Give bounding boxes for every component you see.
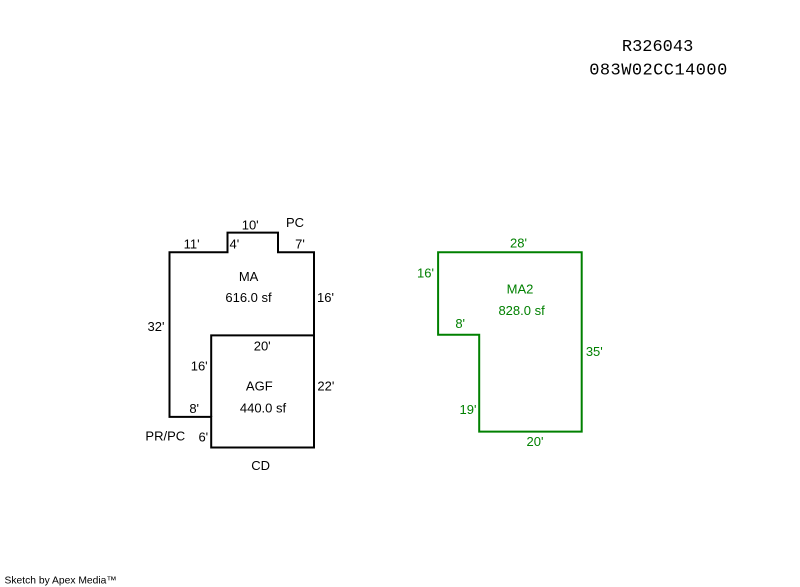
svg-text:Sketch by Apex Media™: Sketch by Apex Media™ (5, 576, 117, 587)
svg-text:28': 28' (510, 236, 527, 251)
svg-text:CD: CD (251, 458, 270, 473)
svg-text:32': 32' (148, 319, 165, 334)
svg-text:MA2: MA2 (507, 281, 534, 296)
svg-text:16': 16' (317, 290, 334, 305)
svg-text:083W02CC14000: 083W02CC14000 (589, 62, 727, 81)
svg-text:16': 16' (417, 266, 434, 281)
svg-text:616.0 sf: 616.0 sf (225, 290, 272, 305)
svg-text:35': 35' (586, 344, 603, 359)
svg-text:11': 11' (184, 236, 200, 251)
svg-text:20': 20' (527, 434, 544, 449)
svg-text:19': 19' (460, 402, 477, 417)
svg-text:20': 20' (254, 339, 271, 354)
svg-text:7': 7' (295, 236, 305, 251)
svg-text:16': 16' (191, 359, 208, 374)
svg-text:4': 4' (230, 236, 240, 251)
svg-text:828.0 sf: 828.0 sf (498, 303, 545, 318)
svg-text:AGF: AGF (246, 379, 273, 394)
svg-text:22': 22' (317, 379, 334, 394)
svg-text:6': 6' (198, 429, 208, 444)
svg-text:8': 8' (189, 401, 199, 416)
svg-text:440.0 sf: 440.0 sf (240, 401, 287, 416)
svg-text:8': 8' (455, 316, 465, 331)
svg-text:10': 10' (242, 218, 259, 233)
svg-text:PR/PC: PR/PC (145, 428, 185, 443)
svg-text:PC: PC (286, 215, 304, 230)
svg-text:MA: MA (239, 269, 259, 284)
svg-text:R326043: R326043 (622, 38, 693, 57)
